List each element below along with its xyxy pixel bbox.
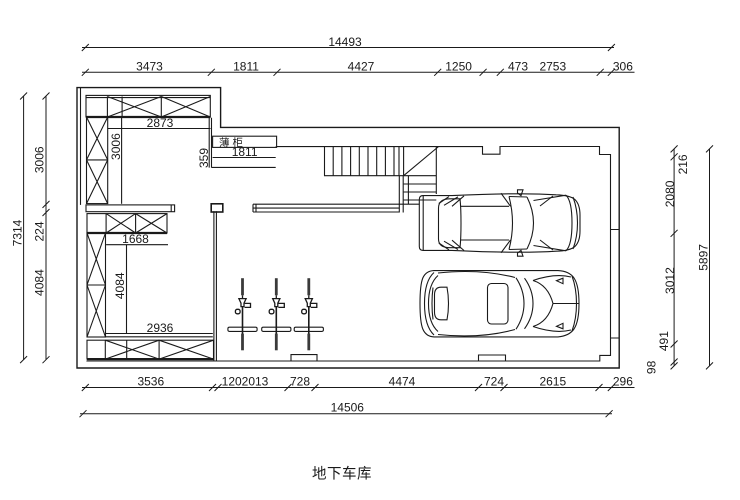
svg-text:491: 491 (657, 331, 671, 351)
svg-text:14493: 14493 (328, 35, 362, 49)
svg-text:1811: 1811 (232, 145, 258, 159)
svg-text:2080: 2080 (663, 180, 677, 207)
svg-text:359: 359 (197, 148, 211, 168)
svg-text:98: 98 (645, 360, 659, 374)
svg-text:4084: 4084 (32, 269, 46, 296)
svg-text:473: 473 (508, 60, 528, 74)
svg-text:224: 224 (32, 221, 46, 241)
svg-text:2753: 2753 (539, 60, 566, 74)
svg-text:1811: 1811 (233, 60, 259, 74)
svg-text:2615: 2615 (539, 375, 566, 389)
svg-text:728: 728 (290, 375, 310, 389)
svg-text:4084: 4084 (113, 272, 127, 299)
svg-text:7314: 7314 (11, 219, 25, 246)
svg-text:216: 216 (676, 154, 690, 174)
svg-text:地下车库: 地下车库 (312, 466, 372, 483)
svg-text:724: 724 (484, 375, 504, 389)
svg-text:296: 296 (613, 375, 633, 389)
svg-text:1668: 1668 (122, 232, 149, 246)
svg-text:2873: 2873 (147, 116, 174, 130)
svg-text:3006: 3006 (109, 133, 123, 160)
svg-text:1250: 1250 (445, 60, 472, 74)
svg-text:4427: 4427 (348, 60, 375, 74)
svg-text:3536: 3536 (137, 375, 164, 389)
svg-text:3006: 3006 (32, 146, 46, 173)
svg-text:1202013: 1202013 (222, 375, 269, 389)
svg-text:3012: 3012 (663, 267, 677, 294)
svg-text:3473: 3473 (136, 60, 163, 74)
svg-text:5897: 5897 (696, 244, 710, 271)
svg-text:14506: 14506 (331, 401, 365, 415)
svg-text:2936: 2936 (147, 321, 174, 335)
svg-text:306: 306 (613, 60, 633, 74)
svg-text:4474: 4474 (389, 375, 416, 389)
